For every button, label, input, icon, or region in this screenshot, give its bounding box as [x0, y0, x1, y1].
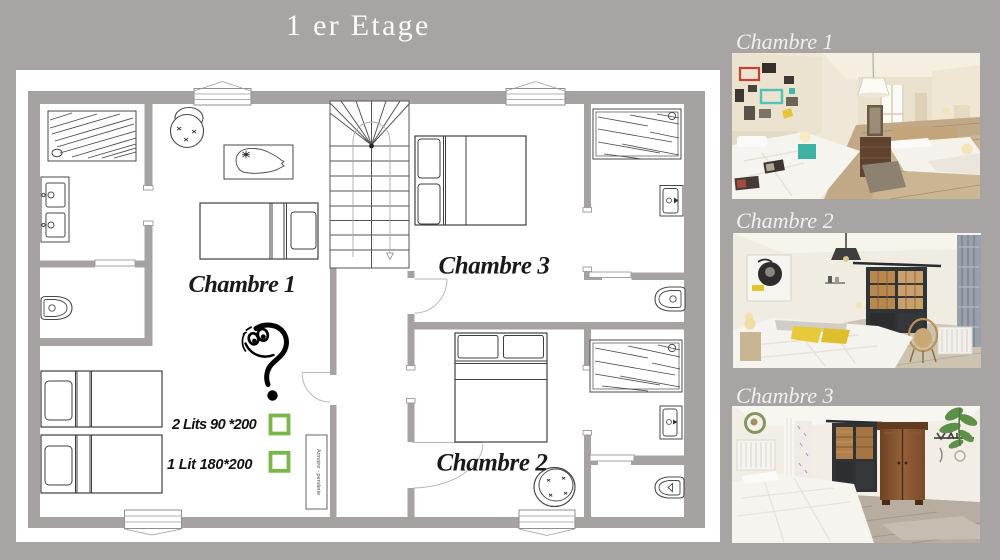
svg-text:1 Lit 180*200: 1 Lit 180*200 — [167, 457, 252, 473]
svg-text:2 Lits 90 *200: 2 Lits 90 *200 — [171, 417, 257, 433]
svg-text:Chambre 1: Chambre 1 — [736, 29, 834, 54]
svg-text:Armoire - penderie: Armoire - penderie — [315, 449, 321, 495]
svg-text:Chambre 2: Chambre 2 — [437, 450, 548, 477]
svg-text:Chambre 3: Chambre 3 — [439, 253, 550, 280]
svg-text:Chambre 2: Chambre 2 — [736, 208, 834, 233]
svg-text:Chambre 1: Chambre 1 — [189, 271, 296, 298]
svg-text:1 er Etage: 1 er Etage — [286, 9, 431, 42]
svg-text:Chambre 3: Chambre 3 — [736, 383, 834, 408]
